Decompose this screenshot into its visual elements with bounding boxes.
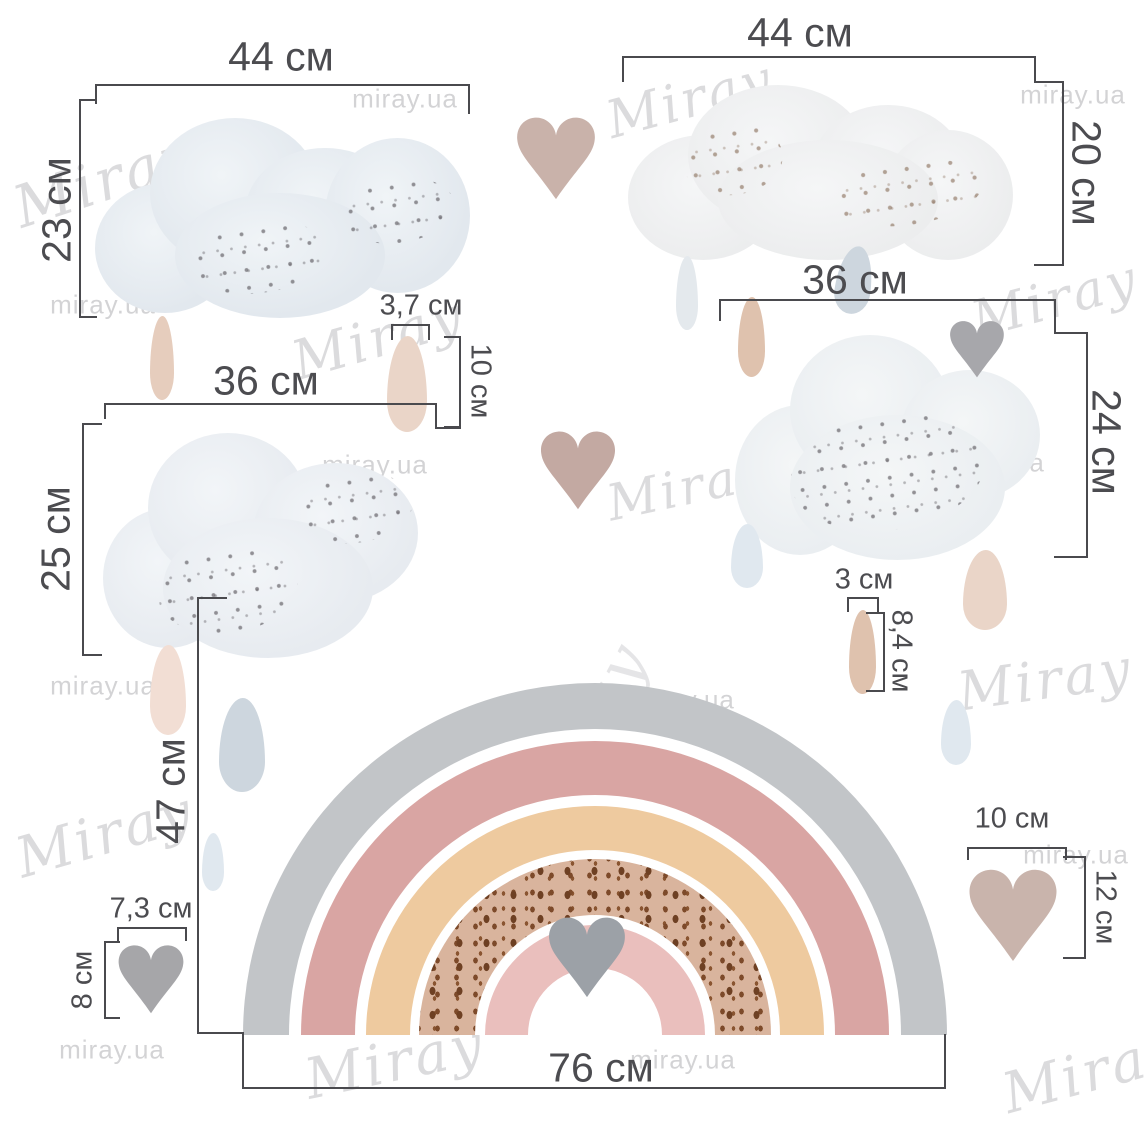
dim-line — [847, 597, 849, 612]
dim-label-cloud-mr-width: 36 см — [802, 260, 908, 301]
dim-label-heart-bl-width: 7,3 см — [110, 895, 193, 924]
dim-line — [117, 927, 119, 941]
raindrop-sticker — [150, 316, 174, 400]
dim-line — [185, 927, 187, 941]
dim-line — [82, 423, 102, 425]
dim-line — [719, 299, 721, 321]
dim-line — [866, 690, 885, 692]
dim-line — [967, 847, 969, 860]
heart-sticker-gray-right — [948, 313, 1006, 385]
raindrop-sticker — [202, 833, 224, 891]
dim-line — [82, 423, 84, 656]
dim-line — [104, 1017, 120, 1019]
dim-line — [1054, 299, 1056, 334]
dim-line — [104, 941, 120, 943]
dim-line — [468, 84, 470, 114]
dim-label-cloud-tr-width: 44 см — [747, 13, 853, 54]
watermark-url: miray.ua — [59, 1035, 165, 1066]
dim-label-cloud-tr-height: 20 см — [1066, 120, 1107, 226]
raindrop-sticker — [676, 256, 698, 330]
watermark-script: Miray — [953, 637, 1136, 724]
dim-line — [104, 403, 106, 419]
dim-line — [79, 316, 97, 318]
dim-line — [95, 84, 97, 104]
dim-label-cloud-ml-height: 25 см — [36, 486, 77, 592]
dim-line — [117, 927, 187, 929]
dim-line — [459, 336, 461, 428]
raindrop-sticker — [219, 698, 265, 792]
dim-line — [1034, 56, 1036, 83]
dim-line — [79, 99, 97, 101]
dim-line — [847, 597, 879, 599]
dim-label-cloud-mr-height: 24 см — [1086, 389, 1127, 495]
dim-label-drop-right-height: 8,4 см — [887, 610, 916, 693]
dim-line — [944, 1034, 946, 1089]
dim-line — [1054, 332, 1088, 334]
dim-line — [428, 324, 430, 340]
heart-icon — [116, 940, 186, 1018]
dim-label-heart-right-height: 12 см — [1091, 870, 1120, 945]
dim-label-rainbow-width: 76 см — [548, 1048, 654, 1089]
dim-label-drop-left-width: 3,7 см — [380, 292, 463, 321]
dim-line — [391, 324, 430, 326]
raindrop-sticker-measured-right — [849, 610, 876, 694]
watermark-url: miray.ua — [1020, 80, 1126, 111]
dim-line — [391, 324, 393, 340]
sticker-dimensions-diagram: Miray Miray Miray Miray Miray Miray Mira… — [0, 0, 1145, 1134]
dim-line — [95, 84, 470, 86]
dim-line — [197, 597, 227, 599]
dim-line — [435, 403, 437, 429]
dim-line — [82, 654, 102, 656]
dim-line — [622, 56, 1036, 58]
dim-line — [1054, 556, 1088, 558]
dim-line — [1034, 264, 1064, 266]
dim-line — [197, 1032, 244, 1034]
cloud-sticker-middle-left — [103, 428, 423, 663]
cloud-sticker-top-right — [628, 80, 1013, 265]
dim-label-cloud-ml-width: 36 см — [213, 361, 319, 402]
watermark-url: miray.ua — [50, 671, 156, 702]
dim-label-drop-left-height: 10 см — [466, 344, 495, 419]
dim-line — [967, 847, 1067, 849]
dim-label-cloud-tl-height: 23 см — [37, 157, 78, 263]
heart-sticker-taupe-middle — [538, 419, 618, 521]
dim-line — [435, 427, 461, 429]
dim-line — [197, 597, 199, 1034]
heart-icon — [546, 903, 628, 1011]
heart-sticker-gray-rainbow-center — [546, 903, 628, 1011]
heart-icon — [514, 106, 598, 210]
dim-label-drop-right-width: 3 см — [835, 566, 894, 595]
dim-line — [1063, 856, 1086, 858]
raindrop-sticker — [738, 297, 765, 377]
heart-sticker-measured-right — [966, 863, 1060, 967]
dim-line — [1084, 856, 1086, 959]
dim-line — [1063, 957, 1086, 959]
heart-icon — [948, 313, 1006, 385]
dim-label-cloud-tl-width: 44 см — [228, 37, 334, 78]
dim-label-heart-right-width: 10 см — [975, 805, 1050, 834]
dim-line — [622, 56, 624, 82]
heart-sticker-measured-bottom-left — [116, 940, 186, 1018]
dim-line — [242, 1032, 244, 1089]
dim-line — [104, 941, 106, 1019]
dim-line — [1065, 847, 1067, 860]
dim-label-rainbow-height: 47 см — [151, 738, 192, 844]
dim-label-heart-bl-height: 8 см — [69, 951, 98, 1010]
heart-icon — [538, 419, 618, 521]
dim-line — [866, 612, 885, 614]
dim-line — [444, 336, 461, 338]
dim-line — [1034, 81, 1064, 83]
watermark-script: Miray — [996, 1017, 1145, 1127]
heart-icon — [966, 863, 1060, 967]
heart-sticker-taupe-top — [514, 106, 598, 210]
